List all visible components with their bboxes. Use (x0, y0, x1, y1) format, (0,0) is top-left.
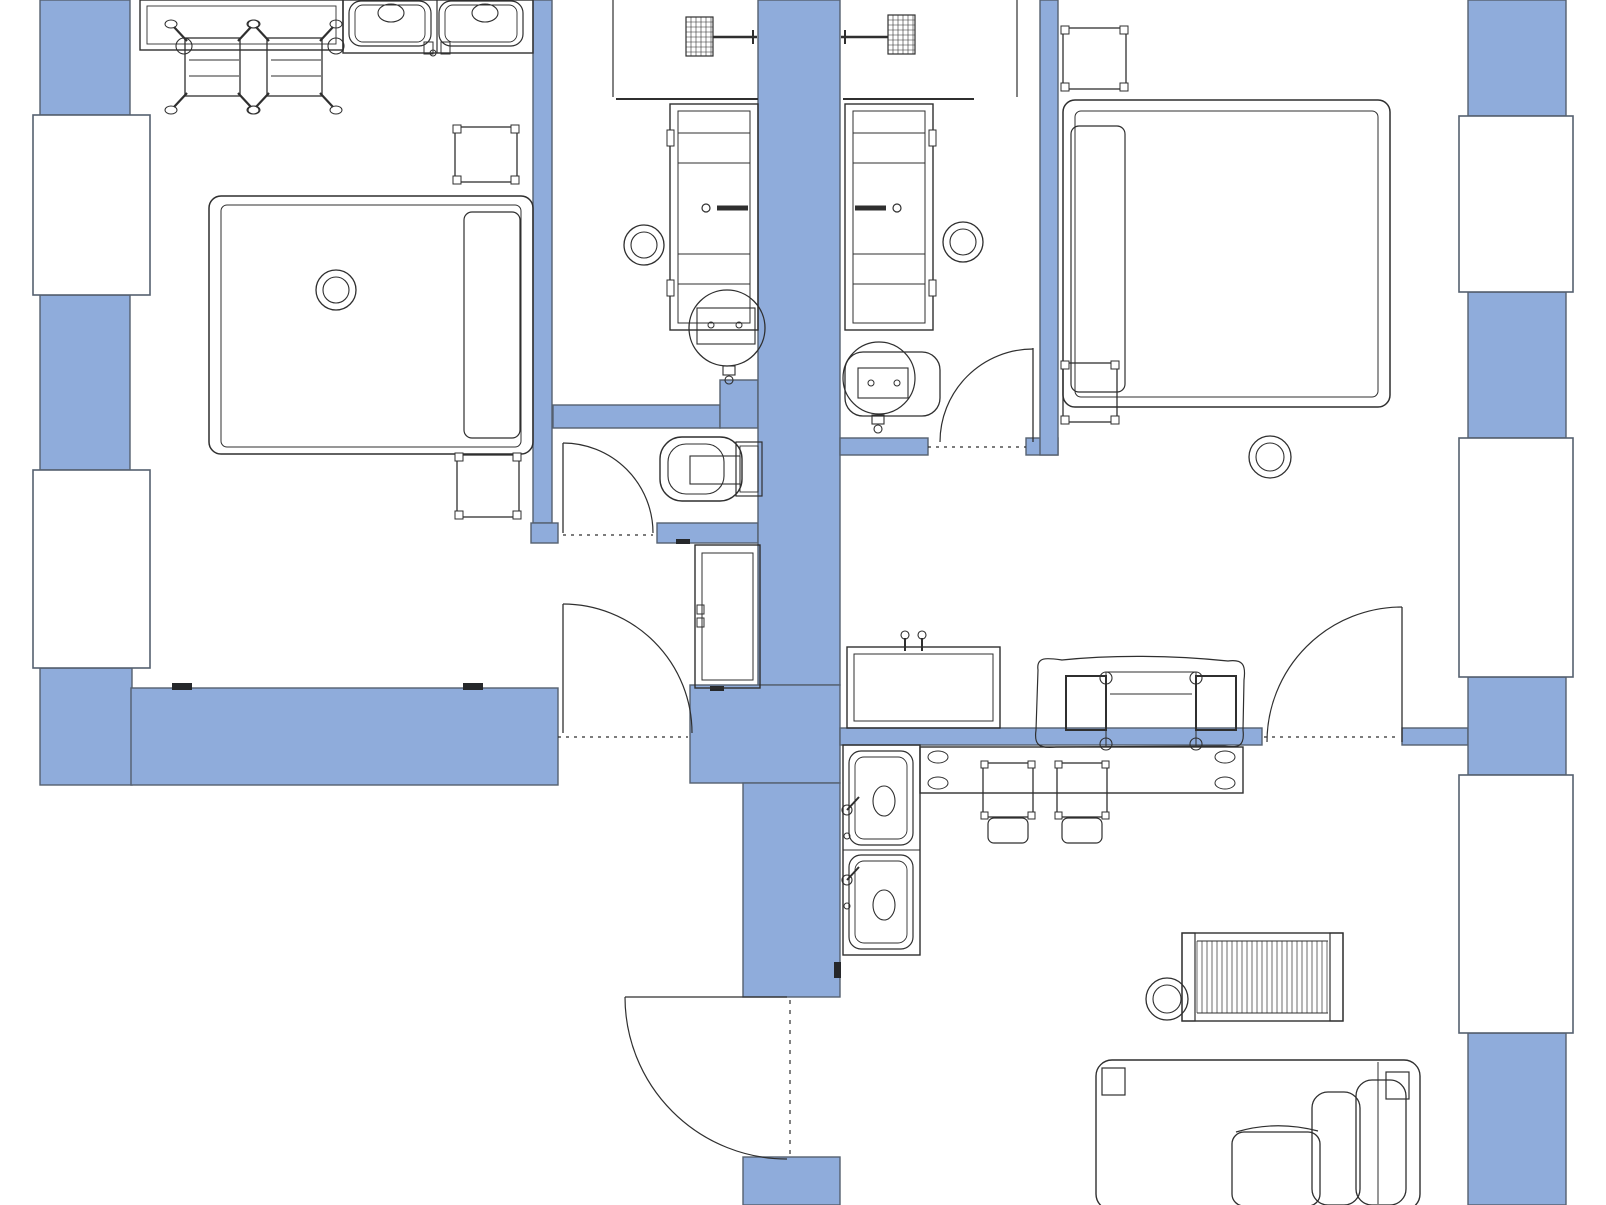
bath-right-tub-outer (845, 104, 933, 330)
living-rug-square-1 (1102, 1068, 1125, 1095)
bath-left-tub-inner (678, 111, 750, 323)
bath-right-basin-dot-1 (868, 380, 874, 386)
bath-left-tub-hinge-1 (667, 130, 674, 146)
bath-left-tub-outer (670, 104, 758, 330)
wc-toilet-seat (668, 444, 724, 494)
chair-1-foot-2 (248, 20, 260, 28)
chair-2-seat (267, 38, 322, 96)
wall-bath-right-east (1040, 0, 1058, 455)
hinge-mark-cabinet-top (676, 539, 690, 544)
bedroom-left-nightstand-top-tab (453, 176, 461, 184)
wall-wc-south (657, 523, 758, 543)
kitchen-sink-basin-1-inner (855, 757, 907, 839)
wc-toilet-inner (690, 456, 740, 484)
wall-wc-west-stub (531, 523, 558, 543)
window-left-1 (33, 115, 150, 295)
bath-left-basin-circle (689, 290, 765, 366)
bedroom-left-table-glide-1 (176, 38, 192, 54)
hall-cabinet-inner (702, 553, 753, 680)
chair-2-leg-1 (256, 27, 269, 41)
living-radiator-frame (1182, 933, 1343, 1021)
chair-1-foot-4 (248, 106, 260, 114)
hall-cabinet-handle-2 (697, 618, 704, 627)
bedroom-left-nightstand-bottom-tab (455, 453, 463, 461)
wc-toilet-bowl (660, 437, 742, 501)
living-lamp-inner (1153, 985, 1181, 1013)
bedroom-right-nightstand-bottom-tab (1111, 361, 1119, 369)
chair-2-leg-3 (256, 93, 269, 107)
bath-left-vent (686, 17, 713, 56)
bedroom-right-nightstand-bottom-tab (1061, 361, 1069, 369)
wall-bath-left-south (553, 405, 720, 428)
bedroom-left-bed-circle-inner (323, 277, 349, 303)
bath-right-lamp-outer (943, 222, 983, 262)
door-wc-arc (563, 443, 653, 533)
bath-left-lamp-outer (624, 225, 664, 265)
bedroom-right-nightstand-bottom-tab (1061, 416, 1069, 424)
bath-left-basin-faucet (723, 366, 735, 375)
chair-2-foot-1 (247, 20, 259, 28)
hall-cabinet-outer (695, 545, 760, 688)
chair-1-leg-3 (174, 93, 187, 107)
floor-plan-canvas (0, 0, 1606, 1205)
bedroom-right-nightstand-top-tab (1120, 83, 1128, 91)
bath-right-tub-faucet-dot (893, 204, 901, 212)
kitchen-top-sink-basin-1-inner (355, 5, 425, 42)
wall-central-kitchen (743, 783, 840, 997)
kitchen-stool-1-top-tab (1028, 812, 1035, 819)
bath-right-tub-hinge-1 (929, 130, 936, 146)
wall-bedroom-left-east (533, 0, 552, 523)
junction-mark-band-2 (463, 683, 483, 690)
living-serving-counter-inner (854, 654, 993, 721)
chair-1-foot-1 (165, 20, 177, 28)
living-radiator-cap-right (1330, 933, 1343, 1021)
chair-2-foot-4 (330, 106, 342, 114)
chair-1-leg-2 (238, 27, 251, 41)
bedroom-left-nightstand-top-tab (511, 125, 519, 133)
kitchen-top-sink-basin-2 (439, 1, 523, 46)
kitchen-stool-2-top-tab (1055, 761, 1062, 768)
bedroom-left-bed-circle-outer (316, 270, 356, 310)
wall-right-lower (1468, 1033, 1566, 1205)
bedroom-right-bed-inner (1075, 111, 1378, 397)
kitchen-stool-1-top-tab (981, 761, 988, 768)
bedroom-right-nightstand-top (1063, 28, 1126, 89)
bath-right-basin-circle (843, 342, 915, 414)
kitchen-stool-1-top (983, 763, 1033, 817)
bath-right-basin-body (845, 352, 940, 416)
kitchen-stool-2-top (1057, 763, 1107, 817)
bath-right-vent (888, 15, 915, 54)
bedroom-left-nightstand-bottom-tab (513, 453, 521, 461)
bedroom-right-bed-pillow (1071, 126, 1125, 392)
door-living-arc (1267, 607, 1402, 742)
door-bath-right-arc (940, 349, 1033, 442)
bath-left-basin-rect (697, 308, 755, 344)
bedroom-left-bed-pillow (464, 212, 520, 438)
living-sofa-arm-1 (1312, 1092, 1360, 1205)
kitchen-counter-leg-1 (928, 751, 948, 763)
kitchen-counter-leg-3 (928, 777, 948, 789)
bedroom-right-nightstand-bottom-tab (1111, 416, 1119, 424)
kitchen-sink-drain-2 (873, 890, 895, 920)
chair-2-leg-2 (320, 27, 333, 41)
chair-1-seat (185, 38, 240, 96)
wall-right-mid (1468, 677, 1566, 775)
bath-right-basin-faucet-knob (874, 425, 882, 433)
bath-right-tub-inner (853, 111, 925, 323)
bedroom-left-nightstand-top-tab (511, 176, 519, 184)
door-bottom-arc (625, 997, 787, 1159)
kitchen-top-sink-drain-1 (378, 4, 404, 22)
kitchen-top-sink-unit (343, 0, 533, 53)
wall-bath-left-niche (720, 380, 758, 428)
window-right-3 (1459, 775, 1573, 1033)
wall-central-block (690, 685, 840, 783)
bedroom-left-nightstand-top (455, 127, 517, 182)
chair-1-leg-4 (238, 93, 251, 107)
kitchen-top-sink-faucet-2 (441, 42, 450, 54)
bedroom-left-nightstand-top-tab (453, 125, 461, 133)
window-right-2 (1459, 438, 1573, 677)
bedroom-right-lamp-inner (1256, 443, 1284, 471)
bath-left-tub-faucet-dot (702, 204, 710, 212)
kitchen-counter-leg-2 (1215, 751, 1235, 763)
kitchen-stool-2-foot (1062, 818, 1102, 843)
kitchen-counter-leg-4 (1215, 777, 1235, 789)
wall-central-upper (758, 0, 840, 685)
bedroom-right-nightstand-top-tab (1120, 26, 1128, 34)
bath-right-tub-hinge-2 (929, 280, 936, 296)
bath-left-lamp-inner (631, 232, 657, 258)
living-sofa-back-line (1236, 1126, 1318, 1132)
kitchen-sink-drain-1 (873, 786, 895, 816)
chair-2-leg-4 (320, 93, 333, 107)
living-bench-table-2 (1196, 676, 1236, 730)
bedroom-left-nightstand-bottom-tab (455, 511, 463, 519)
wall-living-south-east (1402, 728, 1468, 745)
living-bench-table-1 (1066, 676, 1106, 730)
bedroom-left-bed-inner (221, 205, 521, 447)
wall-left-mid (40, 295, 130, 470)
kitchen-sink-basin-2-inner (855, 861, 907, 943)
living-serving-counter-outer (847, 647, 1000, 728)
kitchen-top-sink-basin-2-inner (445, 5, 517, 42)
bedroom-right-nightstand-top-tab (1061, 26, 1069, 34)
bedroom-right-lamp-outer (1249, 436, 1291, 478)
chair-1-foot-3 (165, 106, 177, 114)
bedroom-right-nightstand-top-tab (1061, 83, 1069, 91)
wall-right-top (1468, 0, 1566, 116)
kitchen-stool-2-top-tab (1055, 812, 1062, 819)
hinge-mark-kitchen (834, 962, 841, 978)
kitchen-top-sink-basin-1 (349, 1, 431, 46)
kitchen-sink-basin-2 (849, 855, 913, 949)
door-hall-south-arc (563, 604, 692, 733)
bath-left-tub-hinge-2 (667, 280, 674, 296)
kitchen-counter (920, 747, 1243, 793)
chair-2-foot-3 (247, 106, 259, 114)
wall-right-upper (1468, 292, 1566, 438)
living-serving-tap-1 (901, 631, 909, 639)
bedroom-left-nightstand-bottom-tab (513, 511, 521, 519)
kitchen-top-sink-drain-2 (472, 4, 498, 22)
junction-mark-band-1 (172, 683, 192, 690)
wall-bath-right-south-west (840, 438, 928, 455)
bath-right-basin-dot-2 (894, 380, 900, 386)
kitchen-stool-2-top-tab (1102, 812, 1109, 819)
wall-left-lower (40, 668, 132, 785)
bedroom-left-bed-outer (209, 196, 533, 454)
bedroom-left-table (140, 0, 343, 50)
living-serving-tap-2 (918, 631, 926, 639)
hall-cabinet-handle-1 (697, 605, 704, 614)
kitchen-stool-1-top-tab (981, 812, 988, 819)
living-radiator-cap-left (1182, 933, 1195, 1021)
wall-left-top (40, 0, 130, 115)
kitchen-stool-2-top-tab (1102, 761, 1109, 768)
kitchen-stool-1-foot (988, 818, 1028, 843)
living-sofa-cushion (1232, 1132, 1320, 1205)
kitchen-stool-1-top-tab (1028, 761, 1035, 768)
window-right-1 (1459, 116, 1573, 292)
floor-plan (0, 0, 1606, 1205)
wall-central-bottom (743, 1157, 840, 1205)
window-left-2 (33, 470, 150, 668)
wall-bottom-band (131, 688, 558, 785)
bedroom-left-nightstand-bottom (457, 455, 519, 517)
bath-right-lamp-inner (950, 229, 976, 255)
